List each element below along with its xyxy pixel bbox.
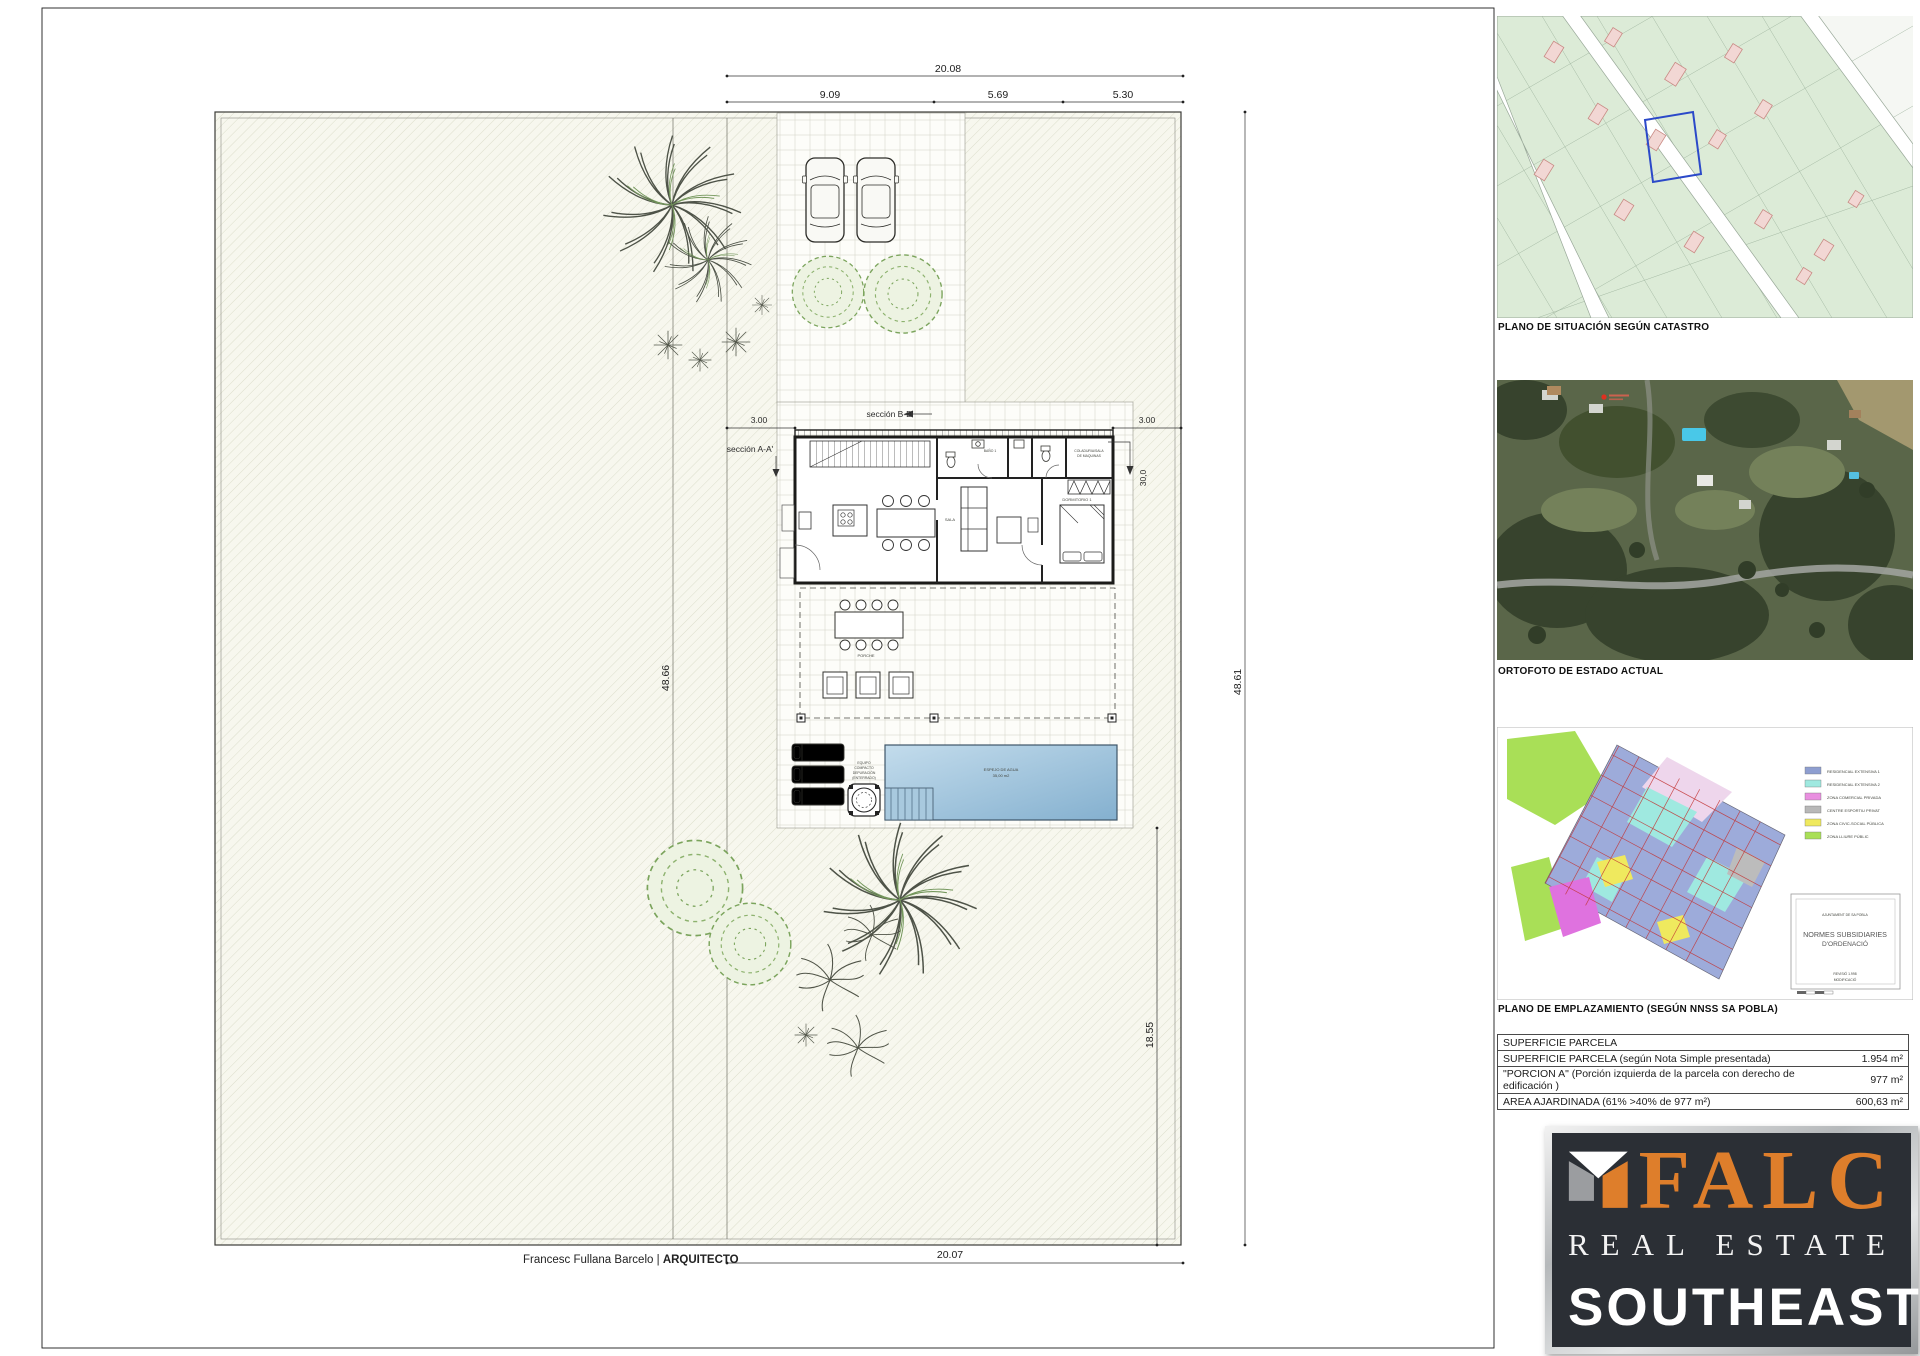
- svg-text:3.00: 3.00: [751, 415, 768, 425]
- architectural-plan-sheet: { "dims": { "top_total": "20.08", "seg1"…: [0, 0, 1920, 1356]
- svg-text:BAÑO 1: BAÑO 1: [984, 448, 997, 453]
- row-label: AREA AJARDINADA (61% >40% de 977 m²): [1498, 1094, 1813, 1110]
- row-label: "PORCION A" (Porción izquierda de la par…: [1498, 1067, 1813, 1094]
- svg-text:48.61: 48.61: [1232, 669, 1244, 695]
- svg-text:30,0: 30,0: [1138, 469, 1148, 486]
- zoning-map-panel: RESIDENCIAL EXTENSIVA 1 RESIDENCIAL EXTE…: [1497, 727, 1913, 1000]
- svg-text:DE MAQUINAS: DE MAQUINAS: [1077, 454, 1101, 458]
- svg-text:RESIDENCIAL EXTENSIVA 2: RESIDENCIAL EXTENSIVA 2: [1827, 782, 1881, 787]
- table-title-row: SUPERFICIE PARCELA: [1498, 1035, 1909, 1051]
- svg-text:ESPEJO DE AGUA: ESPEJO DE AGUA: [984, 767, 1019, 772]
- architect-name: Francesc Fullana Barcelo: [523, 1254, 653, 1266]
- pool: ESPEJO DE AGUA 35,00 m2: [885, 745, 1117, 820]
- brand-name: FALC: [1639, 1145, 1897, 1216]
- falc-logo-mark: [1568, 1145, 1629, 1217]
- svg-text:REVISIÓ 1.998: REVISIÓ 1.998: [1833, 971, 1856, 976]
- caption-ortofoto: ORTOFOTO DE ESTADO ACTUAL: [1498, 666, 1913, 677]
- svg-text:D'ORDENACIÓ: D'ORDENACIÓ: [1822, 939, 1868, 948]
- svg-text:5.30: 5.30: [1113, 89, 1134, 101]
- svg-text:EQUIPO: EQUIPO: [857, 761, 871, 765]
- svg-text:COLADURIA/SALA: COLADURIA/SALA: [1074, 449, 1104, 453]
- svg-text:48.66: 48.66: [660, 665, 672, 691]
- section-a-label: sección A-A': [727, 444, 774, 454]
- site-plan-drawing: BAÑO 1 COLADURIA/SALA DE MAQUINAS DORMIT…: [0, 0, 1500, 1356]
- svg-text:3.00: 3.00: [1139, 415, 1156, 425]
- pool-aerial: [1682, 428, 1706, 441]
- porch-label: PORCHE: [857, 653, 874, 658]
- brand-line3: SOUTHEAST: [1568, 1277, 1897, 1338]
- falc-logo: FALC REAL ESTATE SOUTHEAST: [1545, 1126, 1918, 1354]
- table-row: AREA AJARDINADA (61% >40% de 977 m²) 600…: [1498, 1094, 1909, 1110]
- table-row: SUPERFICIE PARCELA (según Nota Simple pr…: [1498, 1051, 1909, 1067]
- svg-text:20.08: 20.08: [935, 63, 961, 75]
- brand-line2: REAL ESTATE: [1568, 1227, 1897, 1263]
- svg-text:20.07: 20.07: [937, 1249, 963, 1261]
- svg-text:COMPACTO: COMPACTO: [854, 766, 874, 770]
- zoning-titleblock: AJUNTAMENT DE SA POBLA NORMES SUBSIDIARI…: [1791, 894, 1900, 989]
- surface-table: SUPERFICIE PARCELA SUPERFICIE PARCELA (s…: [1497, 1034, 1909, 1110]
- row-label: SUPERFICIE PARCELA (según Nota Simple pr…: [1498, 1051, 1813, 1067]
- house-plan: BAÑO 1 COLADURIA/SALA DE MAQUINAS DORMIT…: [780, 430, 1113, 583]
- svg-text:ZONA CIVIC-SOCIAL PÚBLICA: ZONA CIVIC-SOCIAL PÚBLICA: [1827, 821, 1884, 826]
- svg-text:(ENTERRADO): (ENTERRADO): [852, 776, 876, 780]
- caption-emplazamiento: PLANO DE EMPLAZAMIENTO (SEGÚN NNSS SA PO…: [1498, 1004, 1913, 1015]
- svg-text:MODIFICACIÓ: MODIFICACIÓ: [1834, 977, 1857, 982]
- row-value: 600,63 m²: [1812, 1094, 1909, 1110]
- svg-text:DEPURACIÓN: DEPURACIÓN: [853, 770, 876, 775]
- scale-bar: [1797, 991, 1833, 994]
- svg-text:CENTRE ESPORTIU PRIVAT: CENTRE ESPORTIU PRIVAT: [1827, 808, 1880, 813]
- svg-text:SALA: SALA: [945, 517, 956, 522]
- caption-catastro: PLANO DE SITUACIÓN SEGÚN CATASTRO: [1498, 322, 1913, 333]
- architect-credit: Francesc Fullana Barcelo | ARQUITECTO: [523, 1254, 739, 1266]
- separator: |: [657, 1254, 660, 1266]
- svg-text:9.09: 9.09: [820, 89, 841, 101]
- svg-text:AJUNTAMENT DE SA POBLA: AJUNTAMENT DE SA POBLA: [1822, 913, 1868, 917]
- svg-text:35,00 m2: 35,00 m2: [993, 773, 1010, 778]
- table-title: SUPERFICIE PARCELA: [1498, 1035, 1909, 1051]
- svg-text:18.55: 18.55: [1144, 1022, 1156, 1048]
- row-value: 1.954 m²: [1812, 1051, 1909, 1067]
- svg-text:ZONA COMERCIAL PRIVADA: ZONA COMERCIAL PRIVADA: [1827, 795, 1881, 800]
- cadastral-map-panel: [1497, 16, 1913, 318]
- row-value: 977 m²: [1812, 1067, 1909, 1094]
- svg-text:DORMITORIO 1: DORMITORIO 1: [1062, 497, 1092, 502]
- svg-text:ZONA LLIURE PÚBLIC: ZONA LLIURE PÚBLIC: [1827, 834, 1869, 839]
- svg-text:RESIDENCIAL EXTENSIVA 1: RESIDENCIAL EXTENSIVA 1: [1827, 769, 1881, 774]
- svg-text:5.69: 5.69: [988, 89, 1009, 101]
- architect-role: ARQUITECTO: [663, 1254, 739, 1266]
- table-row: "PORCION A" (Porción izquierda de la par…: [1498, 1067, 1909, 1094]
- svg-text:NORMES SUBSIDIARIES: NORMES SUBSIDIARIES: [1803, 930, 1887, 939]
- section-b-label: sección B-B': [867, 409, 914, 419]
- ortofoto-panel: [1497, 380, 1913, 660]
